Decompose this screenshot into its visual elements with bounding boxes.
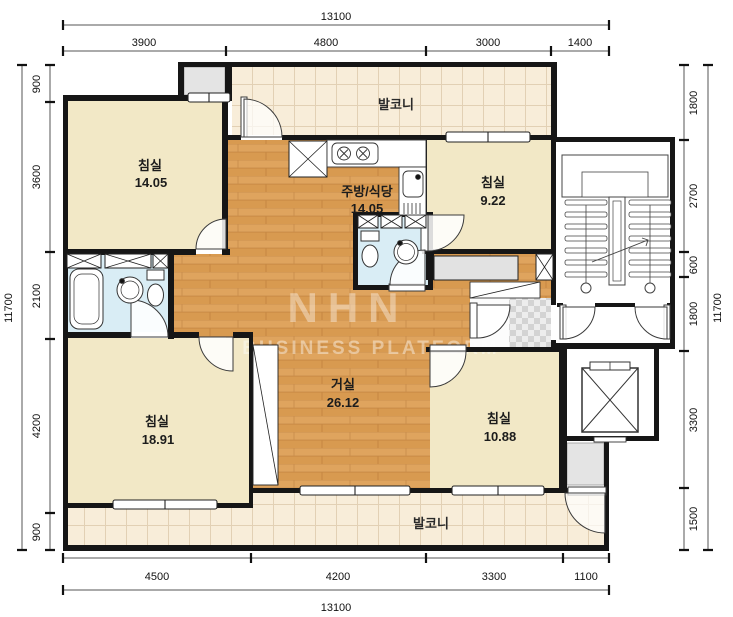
closet-hatch-left-3 [153, 254, 168, 268]
dim-left-seg-2: 2100 [31, 284, 43, 308]
label-bedroom-bl-name: 침실 [145, 414, 169, 429]
dim-bottom-seg-3: 1100 [574, 571, 598, 583]
label-bedroom-bl-area: 18.91 [142, 432, 175, 447]
washbasin-icon [394, 240, 418, 264]
door-stair-hall-left [560, 305, 595, 339]
closet-hatch-bath-3 [405, 215, 426, 228]
elevator-door [590, 362, 630, 370]
window-bedroom-bl [113, 500, 217, 509]
label-living-area: 26.12 [327, 395, 360, 410]
dim-right-seg-5: 1500 [688, 507, 700, 531]
dim-right-seg-4: 3300 [688, 408, 700, 432]
toilet-icon [147, 270, 164, 306]
floor-plan-drawing: NHN BUSINESS PLATFORM [0, 0, 733, 617]
living-closet [253, 345, 278, 485]
label-bedroom-tl-area: 14.05 [135, 175, 168, 190]
label-living-name: 거실 [331, 377, 355, 392]
newel-post [645, 283, 655, 293]
closet-hatch-left-1 [67, 254, 101, 268]
door-stair-hall-right [635, 305, 670, 339]
closet-entry-gray [434, 256, 518, 280]
stove-icon [332, 143, 378, 164]
dim-left-total: 11700 [3, 293, 15, 323]
washbasin-icon [117, 277, 143, 303]
fridge-space [289, 141, 327, 177]
dim-right-total: 11700 [712, 293, 724, 323]
dim-left-seg-4: 900 [31, 523, 43, 541]
corridor-floor [172, 254, 230, 337]
newel-post [581, 283, 591, 293]
window-bedroom-tl [188, 93, 230, 102]
window-living [300, 486, 410, 495]
floor-plan-page: NHN BUSINESS PLATFORM [0, 0, 733, 617]
entry-vestibule-floor [509, 298, 551, 347]
dim-right-seg-2: 600 [688, 256, 700, 274]
dim-left-seg-0: 900 [31, 75, 43, 93]
shoe-cabinet [470, 282, 540, 298]
toilet-icon [361, 231, 379, 267]
window-bedroom-br [452, 486, 544, 495]
utility-gray-box [567, 443, 604, 485]
dim-bottom-seg-1: 4200 [326, 571, 350, 583]
dim-bottom-seg-0: 4500 [145, 571, 169, 583]
dim-top-seg-1: 4800 [314, 37, 338, 49]
elevator [582, 362, 638, 442]
dim-right-seg-1: 2700 [688, 184, 700, 208]
closet-hatch-left-2 [105, 254, 151, 268]
dim-bottom-total: 13100 [321, 602, 352, 614]
label-bedroom-br-name: 침실 [487, 411, 511, 426]
closet-hatch-bath-1 [358, 215, 378, 228]
dim-right-seg-3: 1800 [688, 302, 700, 326]
window-bedroom-tr [446, 132, 530, 142]
dim-bottom-seg-2: 3300 [482, 571, 506, 583]
label-bedroom-br-area: 10.88 [484, 429, 517, 444]
dim-top-seg-3: 1400 [568, 37, 592, 49]
label-balcony-bottom: 발코니 [413, 516, 449, 531]
label-balcony-top: 발코니 [378, 97, 414, 112]
staircase [562, 155, 671, 293]
label-bedroom-tr-area: 9.22 [480, 193, 505, 208]
label-kitchen-area: 14.05 [351, 201, 384, 216]
bathtub-icon [70, 269, 103, 329]
label-bedroom-tr-name: 침실 [481, 175, 505, 190]
label-kitchen-name: 주방/식당 [341, 184, 392, 199]
shaft-hatch-entry [536, 254, 553, 280]
ac-alcove [184, 67, 225, 95]
dim-left-seg-1: 3600 [31, 165, 43, 189]
elevator-sill [594, 437, 626, 442]
dim-top-seg-0: 3900 [132, 37, 156, 49]
label-bedroom-tl-name: 침실 [138, 158, 162, 173]
dim-right-seg-0: 1800 [688, 91, 700, 115]
dim-top-seg-2: 3000 [476, 37, 500, 49]
dim-top-total: 13100 [321, 11, 352, 23]
dim-left-seg-3: 4200 [31, 414, 43, 438]
closet-hatch-bath-2 [381, 215, 402, 228]
